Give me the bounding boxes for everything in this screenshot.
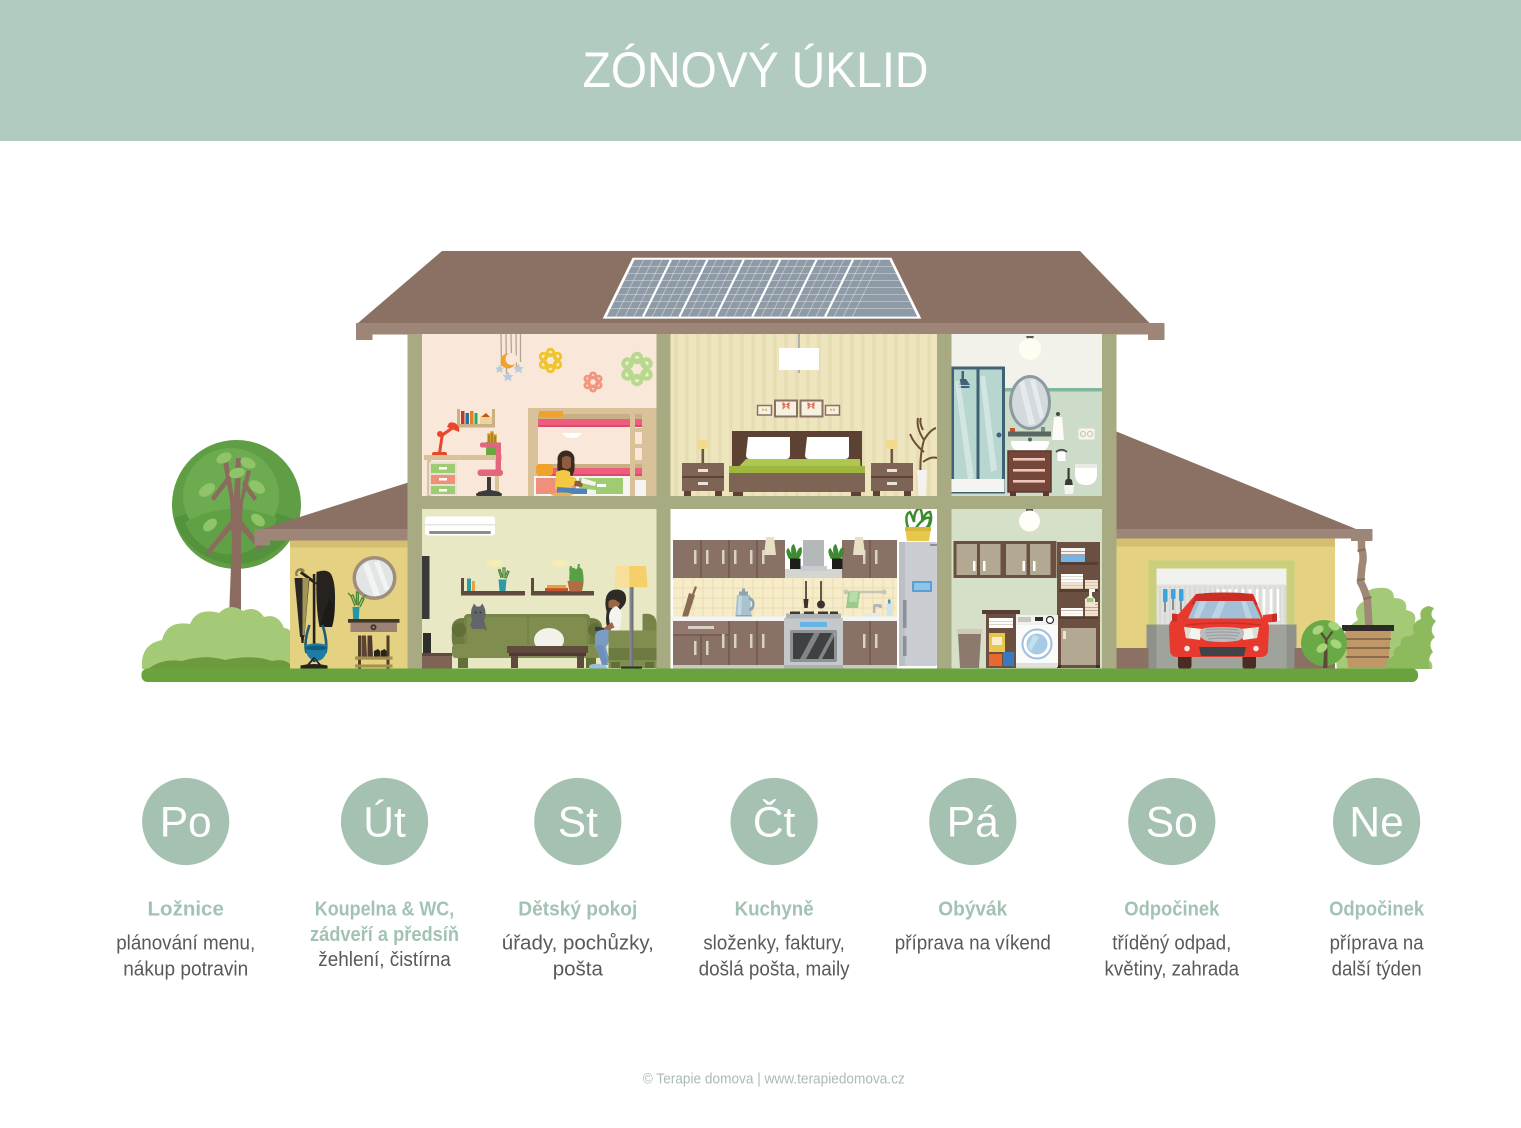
svg-text:žehlení, čistírna: žehlení, čistírna <box>318 948 451 971</box>
svg-text:Odpočinek: Odpočinek <box>1329 898 1425 921</box>
svg-text:Kuchyně: Kuchyně <box>735 898 814 921</box>
svg-text:plánování menu,: plánování menu, <box>116 932 255 955</box>
svg-text:St: St <box>558 800 598 847</box>
svg-text:Čt: Čt <box>753 799 796 847</box>
svg-text:Ložnice: Ložnice <box>148 898 224 921</box>
svg-text:další týden: další týden <box>1332 958 1422 981</box>
svg-text:Odpočinek: Odpočinek <box>1124 898 1220 921</box>
svg-text:úřady, pochůzky,: úřady, pochůzky, <box>502 932 654 955</box>
svg-text:došlá pošta, maily: došlá pošta, maily <box>699 958 851 981</box>
svg-text:Pá: Pá <box>947 800 999 847</box>
svg-text:pošta: pošta <box>553 958 604 981</box>
svg-text:tříděný odpad,: tříděný odpad, <box>1112 932 1231 955</box>
svg-text:ZÓNOVÝ ÚKLID: ZÓNOVÝ ÚKLID <box>583 42 929 98</box>
svg-text:příprava na: příprava na <box>1330 932 1425 955</box>
svg-text:zádveří a předsíň: zádveří a předsíň <box>310 923 459 946</box>
svg-text:So: So <box>1146 800 1198 847</box>
svg-text:Obývák: Obývák <box>938 898 1008 921</box>
svg-text:květiny, zahrada: květiny, zahrada <box>1105 958 1240 981</box>
svg-text:Koupelna & WC,: Koupelna & WC, <box>315 898 455 921</box>
svg-text:Po: Po <box>160 800 212 847</box>
svg-text:složenky, faktury,: složenky, faktury, <box>703 932 845 955</box>
svg-text:Ne: Ne <box>1349 800 1403 847</box>
svg-text:Dětský pokoj: Dětský pokoj <box>518 898 637 921</box>
svg-text:příprava na víkend: příprava na víkend <box>895 932 1051 955</box>
svg-text:Út: Út <box>363 799 406 847</box>
svg-text:nákup potravin: nákup potravin <box>123 958 248 981</box>
svg-text:© Terapie domova | www.terapie: © Terapie domova | www.terapiedomova.cz <box>643 1072 905 1088</box>
